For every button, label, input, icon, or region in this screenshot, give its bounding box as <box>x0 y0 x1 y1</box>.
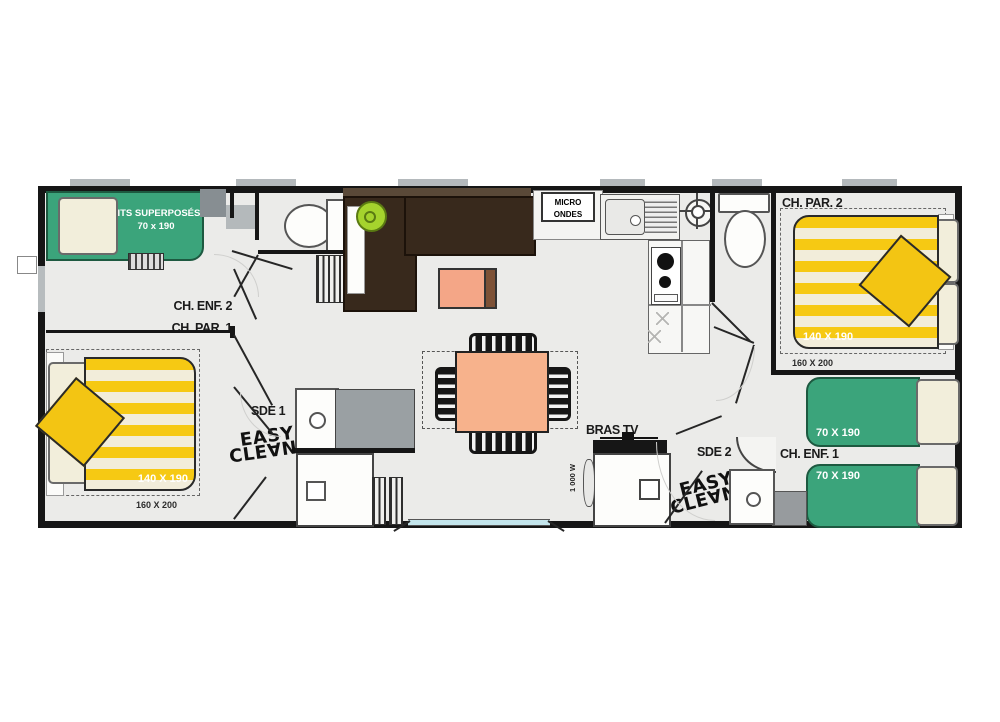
extractor-vent-icon <box>682 196 712 226</box>
wall-heater <box>583 459 595 507</box>
bed-par1-alt-size: 160 X 200 <box>136 500 177 510</box>
bunk-ladder <box>128 253 164 270</box>
shower-column <box>335 389 415 450</box>
bed-enf1-bottom: 70 X 190 <box>806 464 920 528</box>
bed-enf1-top-size: 70 X 190 <box>816 427 860 439</box>
bed-enf1-top: 70 X 190 <box>806 377 920 447</box>
bunk-bed-label: LITS SUPERPOSÉS <box>110 207 202 220</box>
fridge-mark <box>656 312 669 325</box>
wall <box>710 186 715 302</box>
microwave: MICRO ONDES <box>541 192 595 222</box>
wardrobe <box>772 491 807 526</box>
dining-table <box>455 351 549 433</box>
bunk-pillow <box>58 197 118 255</box>
bunk-bed-size: 70 x 190 <box>110 220 202 233</box>
hob-controls <box>654 294 678 302</box>
wall <box>771 370 962 375</box>
shower-drain <box>639 479 660 500</box>
heater-power-label: 1 000 W <box>568 448 580 508</box>
wardrobe <box>200 189 226 217</box>
radiator <box>316 255 346 303</box>
room-label-ch-enf-2: CH. ENF. 2 <box>160 299 232 313</box>
bed-par1-size: 140 X 190 <box>138 473 188 485</box>
microwave-label-2: ONDES <box>543 209 593 221</box>
washbasin <box>295 388 339 452</box>
left-wall-window <box>38 266 45 312</box>
shower-tray <box>296 453 374 527</box>
sink-drain <box>630 215 641 226</box>
bed-par2-alt-size: 160 X 200 <box>792 358 833 368</box>
fridge-mark <box>648 330 661 343</box>
sink-drainer <box>645 199 677 233</box>
toilet-bowl <box>724 210 766 268</box>
tv-bracket-icon <box>622 432 634 440</box>
radiator <box>372 477 386 525</box>
microwave-label-1: MICRO <box>543 197 593 209</box>
pillow <box>916 379 960 445</box>
sofa-seat <box>404 196 536 256</box>
coffee-table-edge <box>484 268 497 309</box>
wall <box>255 186 259 240</box>
wall <box>230 186 234 218</box>
hob <box>651 247 681 305</box>
wall <box>46 330 232 333</box>
bay-window <box>408 519 550 526</box>
room-label-ch-enf-1: CH. ENF. 1 <box>780 447 839 461</box>
shower-drain <box>306 481 326 501</box>
floor-plan: LITS SUPERPOSÉS 70 x 190 CH. ENF. 2 CH. … <box>0 0 1000 722</box>
wall <box>258 250 346 254</box>
washbasin <box>729 469 775 525</box>
bed-par2-size: 140 X 190 <box>803 331 853 343</box>
bed-enf1-bottom-size: 70 X 190 <box>816 470 860 482</box>
pillow <box>916 466 958 526</box>
wall <box>771 186 776 374</box>
exterior-fitting <box>17 256 37 274</box>
sink-unit <box>600 194 680 240</box>
radiator <box>389 477 403 525</box>
sofa-lime-cushion <box>356 201 387 232</box>
burner-large <box>657 253 674 270</box>
burner-small <box>659 276 671 288</box>
coffee-table <box>438 268 486 309</box>
